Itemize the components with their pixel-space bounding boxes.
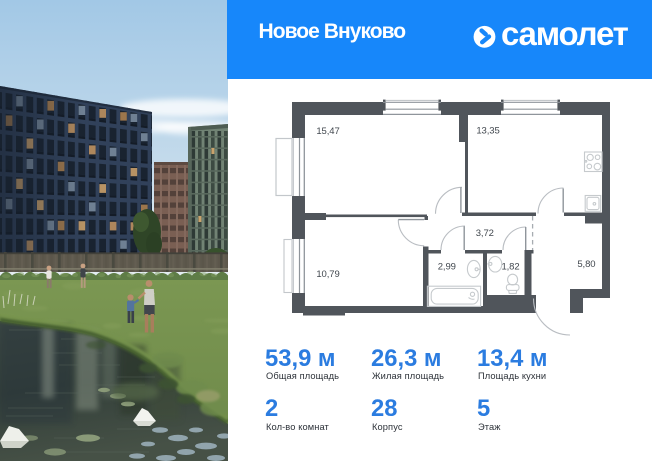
svg-text:3,72: 3,72	[476, 228, 494, 239]
svg-text:1,82: 1,82	[501, 262, 519, 273]
svg-text:5,80: 5,80	[577, 259, 595, 270]
svg-text:13,35: 13,35	[476, 126, 499, 137]
svg-text:10,79: 10,79	[316, 269, 339, 280]
svg-text:15,47: 15,47	[316, 126, 339, 137]
svg-text:2,99: 2,99	[438, 262, 456, 273]
